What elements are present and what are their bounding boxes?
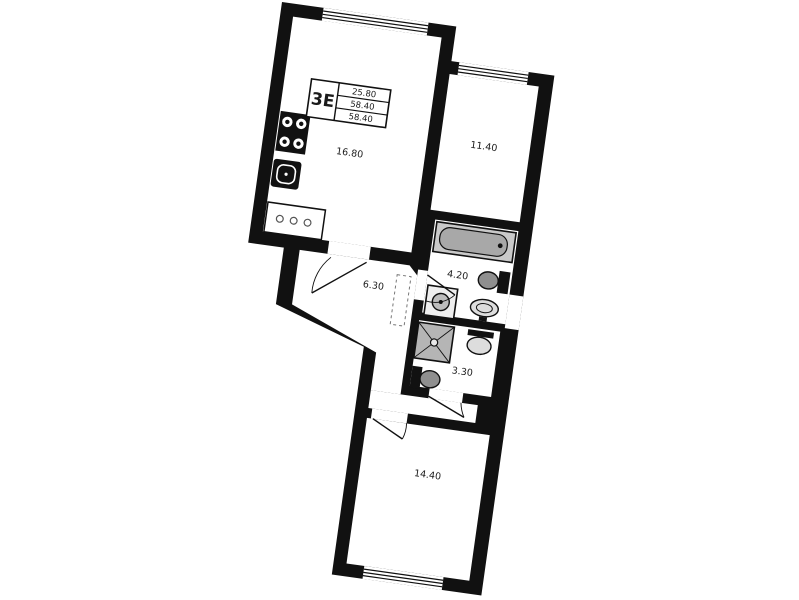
floor-plan-svg: 3E 25.80 58.40 58.40 16.80 11.40 6.30 4.… (0, 0, 799, 600)
room-bedroom-lower-floor (346, 418, 489, 581)
stove-icon (275, 111, 310, 155)
floor-plan-page: 3E 25.80 58.40 58.40 16.80 11.40 6.30 4.… (0, 0, 799, 600)
floor-plan-rotated-group: 3E 25.80 58.40 58.40 16.80 11.40 6.30 4.… (204, 2, 559, 596)
shower-icon (414, 322, 455, 363)
kitchen-sink-icon (270, 158, 302, 190)
unit-type-label: 3E (310, 89, 336, 112)
